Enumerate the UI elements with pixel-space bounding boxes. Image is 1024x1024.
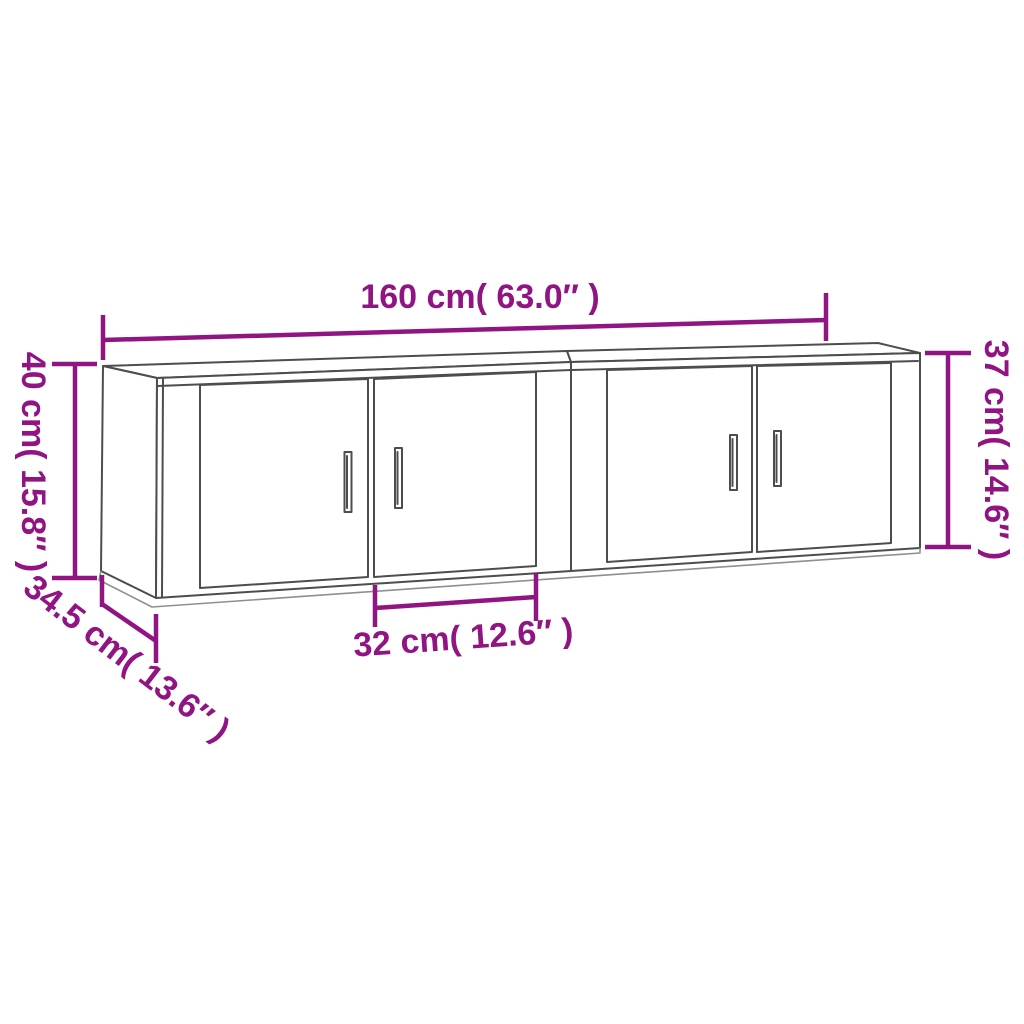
door-width-dimension-line xyxy=(375,597,536,608)
product-dimension-diagram: 160 cm( 63.0″ ) 37 cm( 14.6″ ) 40 cm( 15… xyxy=(0,0,1024,1024)
width-dimension-label: 160 cm( 63.0″ ) xyxy=(360,278,599,316)
dimension-height-right: 37 cm( 14.6″ ) xyxy=(925,340,1015,560)
dimension-height-left: 40 cm( 15.8″ ) xyxy=(14,352,97,578)
dimension-door-width: 32 cm( 12.6″ ) xyxy=(352,573,575,665)
height-left-dimension-label: 40 cm( 15.8″ ) xyxy=(14,352,52,572)
cabinet-left-door-1 xyxy=(200,379,368,588)
width-dimension-line xyxy=(103,320,826,340)
cabinet-left xyxy=(101,351,571,598)
cabinet-left-side-panel xyxy=(101,366,157,598)
cabinet-right xyxy=(567,343,920,571)
height-right-dimension-label: 37 cm( 14.6″ ) xyxy=(977,340,1015,560)
cabinets-drawing xyxy=(99,343,920,607)
door-width-dimension-label: 32 cm( 12.6″ ) xyxy=(352,611,575,664)
cabinet-left-stile-line xyxy=(162,379,163,597)
diagram-svg: 160 cm( 63.0″ ) 37 cm( 14.6″ ) 40 cm( 15… xyxy=(0,0,1024,1024)
